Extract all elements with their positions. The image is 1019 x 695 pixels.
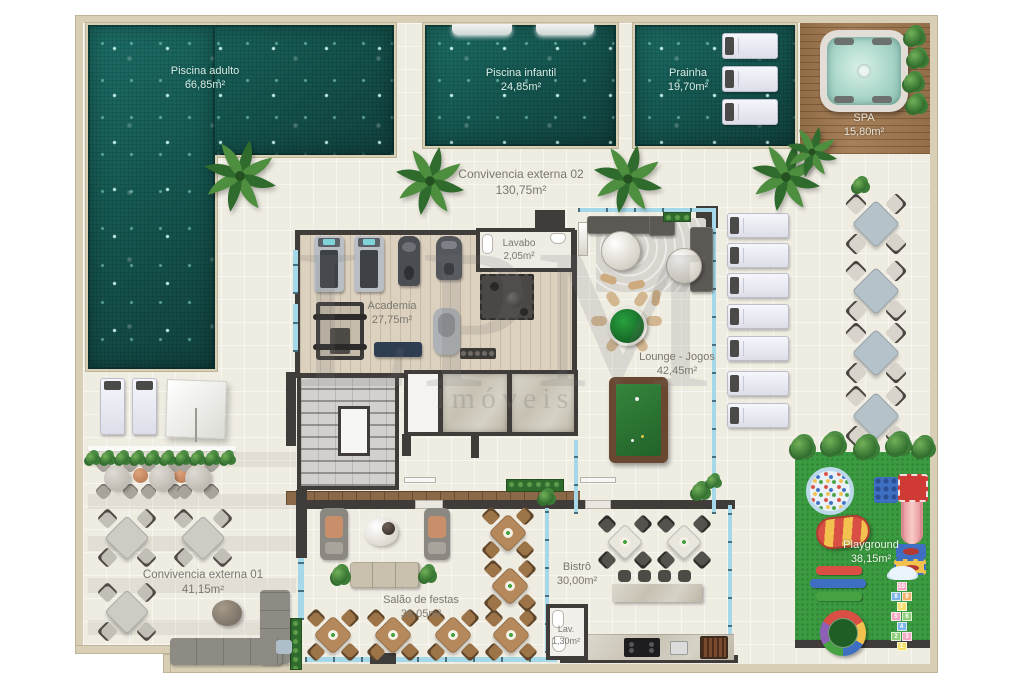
marble-coffee-table	[601, 231, 641, 271]
shrub-icon	[86, 452, 98, 464]
outdoor-table-set	[100, 511, 154, 565]
label-convivencia-externa-01: Convivencia externa 0141,15m²	[143, 568, 263, 598]
elevator-cab	[443, 374, 507, 432]
waterfall-feature	[536, 24, 594, 35]
shrub-icon	[176, 452, 188, 464]
hopscotch-tile: 7	[897, 602, 907, 611]
shrub-icon	[539, 490, 553, 504]
palm-tree-icon	[590, 141, 666, 217]
grill	[700, 636, 728, 659]
card-chair	[646, 316, 662, 326]
salao-left-glass	[298, 558, 304, 620]
shrub-icon	[853, 178, 867, 192]
climber-panel	[874, 477, 898, 503]
sun-lounger	[727, 243, 789, 268]
climber-platform	[898, 474, 928, 502]
sun-lounger	[727, 403, 789, 428]
shrub-icon	[855, 436, 877, 458]
label-lavabo: Lavabo2,05m²	[503, 237, 536, 263]
hopscotch-tile: 2	[891, 632, 901, 641]
slide	[901, 502, 923, 544]
hot-tub	[820, 30, 908, 112]
palm-tree-icon	[200, 136, 280, 216]
hot-tub-seat	[872, 38, 892, 45]
sun-lounger	[722, 33, 778, 59]
label-piscina-infantil: Piscina infantil24,85m²	[486, 66, 556, 95]
wall-stub	[471, 434, 479, 458]
hopscotch-cloud	[889, 566, 916, 580]
elevator-hall	[408, 374, 438, 432]
shrub-icon	[146, 452, 158, 464]
armchair	[320, 508, 348, 560]
card-chair	[591, 316, 607, 326]
counter-stool	[618, 570, 631, 582]
shrub-icon	[101, 452, 113, 464]
bistro-counter	[612, 584, 702, 602]
sun-lounger	[727, 213, 789, 238]
bistro-right-glass	[728, 505, 732, 655]
sun-lounger	[727, 371, 789, 396]
card-table	[607, 306, 647, 346]
seesaw-bar	[810, 579, 866, 588]
sun-lounger	[100, 378, 125, 435]
ball-pit	[806, 467, 854, 515]
floor-plan-canvas: 10897564231	[0, 0, 1019, 695]
shrub-icon	[131, 452, 143, 464]
counter-stool	[678, 570, 691, 582]
plant	[332, 566, 348, 584]
elevator-block	[404, 370, 578, 436]
hall-planter	[506, 479, 564, 492]
ottoman	[276, 640, 292, 654]
armchair	[424, 508, 450, 560]
stair-void	[338, 406, 370, 456]
sun-lounger	[722, 99, 778, 125]
door-leaf	[580, 477, 616, 483]
gym-window	[293, 304, 298, 352]
shrub-icon	[907, 95, 925, 113]
round-table-set	[97, 458, 137, 498]
exercise-bike	[398, 236, 420, 286]
lounge-glass-left	[574, 440, 578, 514]
wall-chunk	[535, 210, 565, 230]
slide-step	[896, 544, 926, 559]
elevator-cab	[512, 374, 574, 432]
waterfall-feature	[452, 24, 512, 35]
label-prainha: Prainha19,70m²	[668, 66, 708, 95]
counter-stool	[638, 570, 651, 582]
shrub-icon	[191, 452, 203, 464]
outdoor-sofa	[170, 638, 282, 665]
door-leaf	[404, 477, 436, 483]
lounge-planter	[663, 212, 691, 222]
shrub-icon	[206, 452, 218, 464]
lavabo-sink	[482, 234, 493, 254]
sun-lounger	[727, 273, 789, 298]
merry-go-round	[820, 610, 866, 656]
hopscotch-tile: 4	[897, 622, 907, 631]
shrub-icon	[822, 433, 844, 455]
outdoor-table-set	[484, 509, 532, 557]
shrub-icon	[692, 483, 708, 499]
dumbbell-rack	[460, 348, 496, 359]
cooktop	[624, 638, 660, 657]
label-playground: Playground38,15m²	[843, 538, 899, 567]
stretch-bench	[433, 308, 460, 355]
outdoor-table-set	[309, 611, 357, 659]
hopscotch-tile: 1	[897, 642, 907, 651]
bistro-door	[585, 500, 611, 509]
shrub-icon	[221, 452, 233, 464]
stone-table	[212, 600, 242, 626]
palm-tree-icon	[784, 124, 840, 180]
label-academia: Academia27,75m²	[368, 299, 417, 328]
shrub-icon	[791, 436, 813, 458]
gym-window	[293, 250, 298, 294]
outdoor-table-set	[848, 325, 904, 381]
hopscotch-tile: 5	[891, 612, 901, 621]
hot-tub-center-jet	[857, 64, 871, 78]
outdoor-table-set	[487, 611, 535, 659]
plant	[420, 566, 434, 582]
label-convivencia-externa-02: Convivencia externa 02130,75m²	[458, 167, 583, 198]
label-lounge-jogos: Lounge - Jogos42,45m²	[639, 350, 715, 379]
wall-stub	[402, 434, 411, 456]
sun-lounger	[727, 336, 789, 361]
seesaw-bar	[816, 592, 862, 601]
shrub-icon	[116, 452, 128, 464]
conv1-wall	[286, 372, 296, 446]
sun-lounger	[722, 66, 778, 92]
gym-mat	[480, 274, 534, 320]
hopscotch-tile: 9	[902, 592, 912, 601]
marble-coffee-table	[666, 248, 702, 284]
hot-tub-seat	[834, 96, 854, 103]
shrub-icon	[887, 433, 909, 455]
hot-tub-seat	[872, 96, 892, 103]
label-salao-de-festas: Salão de festas39,05m²	[383, 593, 459, 622]
outdoor-table-set	[659, 517, 709, 567]
outdoor-table-set	[600, 517, 650, 567]
billiard-table	[609, 377, 668, 463]
umbrella-pole	[195, 408, 197, 442]
label-piscina-adulto: Piscina adulto66,85m²	[171, 64, 240, 93]
round-table-set	[178, 458, 218, 498]
hopscotch-tile: 10	[897, 582, 907, 591]
label-spa: SPA15,80m²	[844, 111, 884, 140]
outdoor-table-set	[176, 511, 230, 565]
seesaw-bar	[816, 566, 862, 575]
sun-lounger	[727, 304, 789, 329]
salao-left-wall	[296, 490, 307, 558]
hot-tub-seat	[834, 38, 854, 45]
salao-sofa	[350, 562, 420, 588]
label-bistro: Bistrô30,00m²	[557, 560, 597, 589]
sun-lounger	[132, 378, 157, 435]
outdoor-table-set	[848, 196, 904, 252]
shrub-icon	[908, 49, 926, 67]
label-lav: Lav.1,30m²	[552, 624, 580, 647]
outdoor-table-set	[848, 263, 904, 319]
kitchen-sink	[670, 641, 688, 655]
palm-tree-icon	[392, 143, 468, 219]
shrub-icon	[161, 452, 173, 464]
shrub-icon	[707, 475, 719, 487]
squat-rack	[316, 302, 364, 360]
hopscotch-tile: 3	[902, 632, 912, 641]
hopscotch-tile: 8	[891, 592, 901, 601]
shrub-icon	[904, 73, 922, 91]
treadmill	[314, 236, 344, 292]
table-lamp	[382, 522, 395, 535]
outdoor-table-set	[486, 562, 534, 610]
shrub-icon	[913, 437, 933, 457]
treadmill	[354, 236, 384, 292]
elliptical	[436, 236, 462, 280]
counter-stool	[658, 570, 671, 582]
deck-divider	[88, 446, 236, 451]
workout-bench	[374, 342, 422, 357]
hopscotch-tile: 6	[902, 612, 912, 621]
shrub-icon	[905, 27, 923, 45]
